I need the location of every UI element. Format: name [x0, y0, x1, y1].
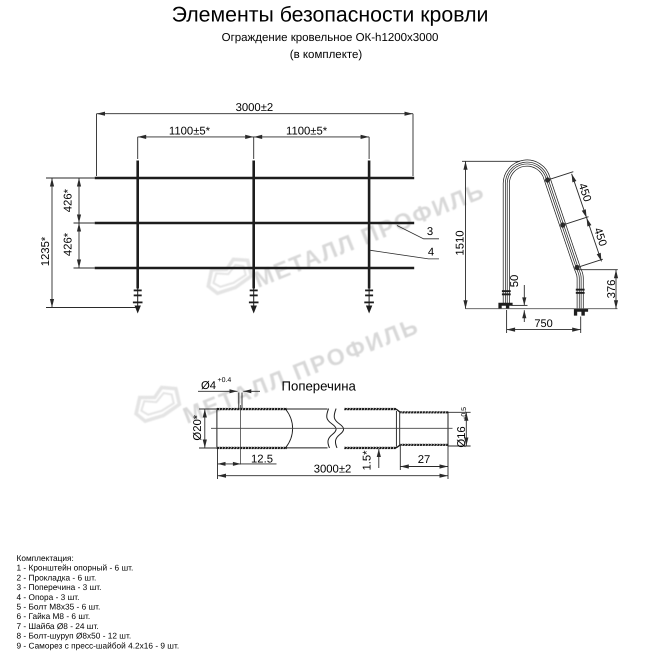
- svg-text:2 - Прокладка - 6 шт.: 2 - Прокладка - 6 шт.: [17, 572, 97, 582]
- svg-text:4 - Опора - 3 шт.: 4 - Опора - 3 шт.: [17, 592, 80, 602]
- svg-text:450: 450: [591, 226, 608, 248]
- svg-text:+0.4: +0.4: [218, 377, 232, 384]
- svg-text:Ограждение кровельное ОК-h1200: Ограждение кровельное ОК-h1200х3000: [222, 32, 439, 44]
- svg-text:Элементы безопасности кровли: Элементы безопасности кровли: [172, 2, 489, 26]
- svg-text:1235*: 1235*: [40, 236, 52, 266]
- svg-text:1510: 1510: [454, 230, 466, 255]
- svg-text:450: 450: [576, 182, 593, 204]
- svg-text:3000±2: 3000±2: [236, 102, 274, 114]
- svg-text:376: 376: [606, 280, 618, 299]
- svg-text:27: 27: [418, 454, 431, 466]
- svg-text:5 - Болт М8х35 - 6 шт.: 5 - Болт М8х35 - 6 шт.: [17, 602, 101, 612]
- svg-text:6 - Гайка М8 - 6 шт.: 6 - Гайка М8 - 6 шт.: [17, 611, 91, 621]
- svg-text:1100±5*: 1100±5*: [286, 125, 328, 137]
- svg-text:750: 750: [534, 318, 552, 330]
- svg-text:3000±2: 3000±2: [314, 464, 352, 476]
- svg-text:1100±5*: 1100±5*: [169, 125, 211, 137]
- svg-text:Ø16: Ø16: [456, 426, 468, 447]
- svg-text:Поперечина: Поперечина: [282, 378, 357, 393]
- svg-text:3: 3: [427, 226, 433, 238]
- svg-text:8 - Болт-шуруп Ø8х50 - 12 шт.: 8 - Болт-шуруп Ø8х50 - 12 шт.: [17, 631, 132, 641]
- svg-text:МЕТАЛЛ ПРОФИЛЬ: МЕТАЛЛ ПРОФИЛЬ: [179, 312, 423, 428]
- svg-text:Ø4: Ø4: [201, 380, 216, 392]
- svg-text:Ø20*: Ø20*: [192, 414, 204, 440]
- svg-text:426*: 426*: [62, 232, 74, 256]
- svg-text:1 - Кронштейн опорный - 6 шт.: 1 - Кронштейн опорный - 6 шт.: [17, 563, 134, 573]
- svg-text:12.5: 12.5: [251, 454, 273, 466]
- svg-text:1.5*: 1.5*: [362, 450, 374, 471]
- svg-text:3 - Поперечина - 3 шт.: 3 - Поперечина - 3 шт.: [17, 582, 102, 592]
- svg-text:-0.5: -0.5: [461, 407, 468, 419]
- svg-text:50: 50: [509, 275, 521, 288]
- svg-text:4: 4: [428, 247, 434, 259]
- svg-text:7 - Шайба Ø8 - 24 шт.: 7 - Шайба Ø8 - 24 шт.: [17, 621, 99, 631]
- svg-text:Комплектация:: Комплектация:: [17, 553, 74, 563]
- svg-text:426*: 426*: [62, 188, 74, 212]
- svg-text:(в комплекте): (в комплекте): [290, 49, 363, 61]
- svg-text:9 - Саморез с пресс-шайбой 4.2: 9 - Саморез с пресс-шайбой 4.2х16 - 9 шт…: [17, 640, 180, 650]
